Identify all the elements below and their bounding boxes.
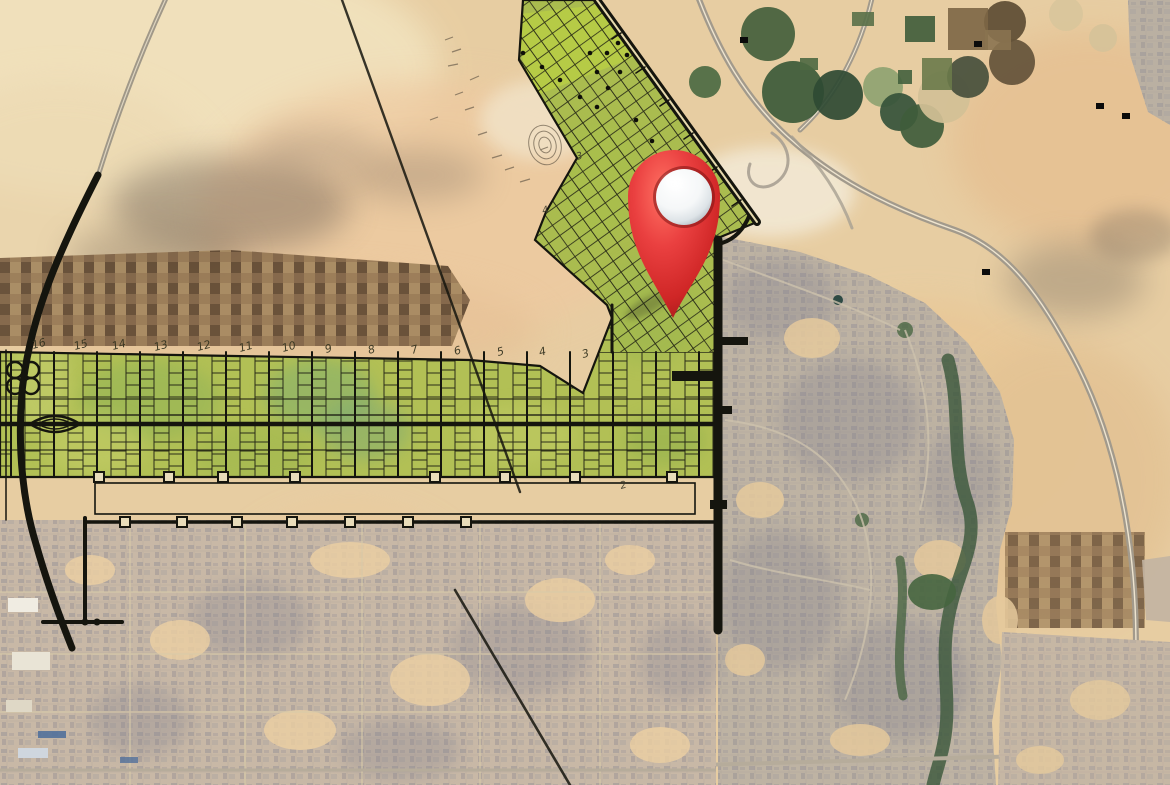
road-node-square <box>667 472 677 482</box>
ground-structure <box>1122 113 1130 119</box>
irrigation-circle <box>947 56 989 98</box>
ground-structure <box>982 269 990 275</box>
irrigation-circle <box>741 7 795 61</box>
road-node-square <box>177 517 187 527</box>
parcel-dot <box>595 70 600 75</box>
parcel-dot <box>606 86 611 91</box>
ground-structure <box>974 41 982 47</box>
city-park <box>908 574 956 610</box>
road-node-square <box>232 517 242 527</box>
road-node-square <box>290 472 300 482</box>
parcel-dot <box>625 53 630 58</box>
road-node-square <box>430 472 440 482</box>
parcel-dot <box>578 95 583 100</box>
irrigation-circle <box>689 66 721 98</box>
farm-field <box>985 30 1011 50</box>
pin-ball <box>656 169 712 225</box>
city-south <box>0 520 720 785</box>
farm-field <box>922 58 952 90</box>
road-node-square <box>500 472 510 482</box>
irrigation-circle <box>1089 24 1117 52</box>
road-node-square <box>164 472 174 482</box>
irrigation-circle <box>813 70 863 120</box>
farm-field <box>800 58 818 70</box>
road-node-square <box>120 517 130 527</box>
parcel-dot <box>605 51 610 56</box>
farm-field <box>905 16 935 42</box>
road-node-square <box>287 517 297 527</box>
blue-roof <box>38 731 66 738</box>
parcel-dot <box>634 118 639 123</box>
parcel-dot <box>616 41 621 46</box>
farm-field <box>898 70 912 84</box>
parcel-dot <box>588 51 593 56</box>
road-node-square <box>345 517 355 527</box>
pin-ball-highlight <box>664 176 682 188</box>
road-node-square <box>570 472 580 482</box>
road-node-square <box>403 517 413 527</box>
map-canvas: Desert satellite map showing a yellow-gr… <box>0 0 1170 785</box>
road-node-square <box>461 517 471 527</box>
ground-structure <box>1096 103 1104 109</box>
road-node-square <box>218 472 228 482</box>
parcel-dot <box>595 105 600 110</box>
parcel-dot <box>650 139 655 144</box>
parcel-dot <box>558 78 563 83</box>
farm-field <box>852 12 874 26</box>
parcel-dot <box>521 51 526 56</box>
parcel-dot <box>618 70 623 75</box>
parcel-dot <box>540 65 545 70</box>
ground-structure <box>740 37 748 43</box>
road-node-square <box>94 472 104 482</box>
